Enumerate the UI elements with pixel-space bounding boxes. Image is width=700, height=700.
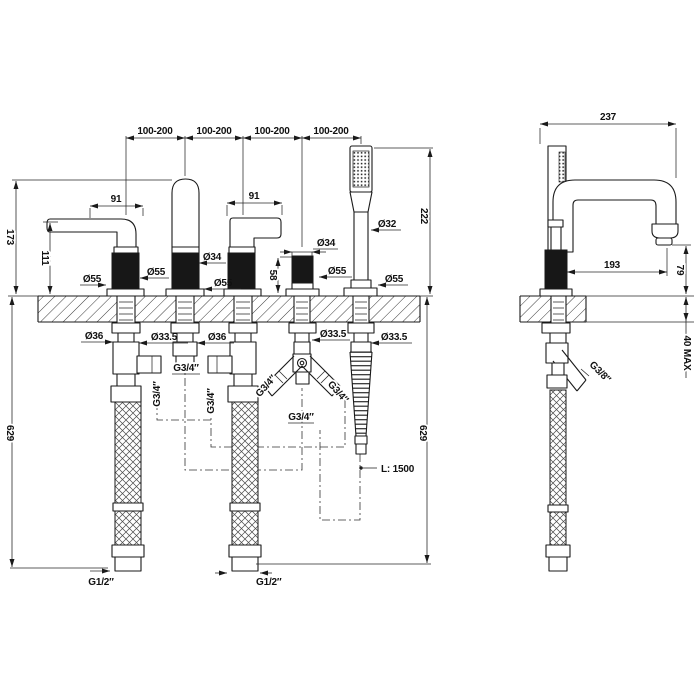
label-dia335-handle-left: Ø33.5 (151, 332, 178, 343)
diverter-bottom-port (296, 372, 309, 384)
label-diverter-height: 58 (267, 270, 278, 281)
label-handshower-height: 222 (418, 208, 429, 225)
side-view: 237 193 79 40 MAX G3/8″ (520, 112, 694, 571)
label-spacing-3: 100-200 (254, 126, 290, 137)
label-dia335-handshower: Ø33.5 (381, 332, 408, 343)
label-dia36-handle-left: Ø36 (85, 331, 104, 342)
label-lever-length-left: 91 (111, 194, 122, 205)
label-g38-port: G3/8″ (587, 359, 613, 385)
label-g34-spout-port: G3/4″ (173, 363, 199, 374)
diverter-shank (294, 296, 310, 323)
label-spacing-2: 100-200 (196, 126, 232, 137)
hose-left-end-fitting (115, 557, 141, 571)
handle-right-shank (234, 296, 252, 323)
label-dia335-diverter: Ø33.5 (320, 329, 347, 340)
handshower-escutcheon (344, 288, 377, 296)
label-g34-diverter-bottom: G3/4″ (288, 412, 314, 423)
label-dia32-handshower: Ø32 (378, 219, 397, 230)
label-spout-height: 173 (4, 229, 15, 246)
spout-outlet (652, 224, 678, 238)
handle-left-escutcheon (107, 289, 144, 296)
label-side-width: 237 (600, 112, 617, 123)
diverter-tee-body (293, 354, 311, 372)
label-outlet-height: 79 (674, 265, 685, 276)
spout-shank (176, 296, 194, 323)
label-dia55-spout: Ø55 (214, 278, 233, 289)
handshower-hose-fitting (356, 444, 366, 454)
label-spacing-1: 100-200 (137, 126, 173, 137)
handle-right-side-port (208, 356, 232, 373)
label-g12-hose-left: G1/2″ (88, 577, 114, 588)
label-dia55-handle-left-2: Ø55 (147, 267, 166, 278)
spout-escutcheon (166, 289, 204, 296)
technical-drawing-page: 100-200 100-200 100-200 100-200 91 91 17… (0, 0, 700, 700)
handshower-spray-face (353, 151, 369, 187)
handle-left-hex-nut (111, 386, 141, 402)
label-dia55-handle-left: Ø55 (83, 274, 102, 285)
handle-left-neck (114, 247, 138, 253)
handle-right-valve-body (230, 342, 256, 374)
routing-handshower-hose (320, 430, 360, 520)
hose-side-end-fitting (549, 557, 567, 571)
valve-body-side (545, 250, 567, 289)
handle-left-shank (117, 296, 135, 323)
label-dia55-handshower: Ø55 (385, 274, 404, 285)
label-g12-hose-right: G1/2″ (256, 577, 282, 588)
handshower-shank (353, 296, 369, 323)
label-hose-length: L: 1500 (381, 464, 415, 475)
supply-hose-side (546, 390, 570, 571)
label-dia55-diverter: Ø55 (328, 266, 347, 277)
handle-right-neck (229, 247, 255, 253)
handshower-hose-spring (350, 352, 372, 436)
handle-left-valve-body (113, 342, 139, 374)
handle-left (47, 219, 161, 571)
diverter-escutcheon (286, 289, 319, 296)
label-g34-handle-left-port: G3/4″ (152, 381, 163, 407)
valve-escutcheon-side (540, 289, 572, 296)
label-under-depth-right: 629 (417, 425, 428, 442)
label-dia34-spout: Ø34 (203, 252, 222, 263)
handshower-handle (354, 212, 368, 280)
label-handle-height: 111 (39, 251, 50, 267)
valve-side (540, 220, 589, 571)
valve-shank-side (551, 296, 566, 323)
label-under-depth-left: 629 (4, 425, 15, 442)
label-deck-max: 40 MAX (681, 336, 692, 371)
diverter-knob (292, 256, 313, 283)
handle-left-grip (112, 253, 139, 289)
label-spacing-4: 100-200 (313, 126, 349, 137)
hose-right-end-fitting (232, 557, 258, 571)
label-spout-reach: 193 (604, 260, 621, 271)
supply-hose-left (112, 402, 144, 571)
spout-side (553, 180, 678, 252)
handle-left-side-port (137, 356, 161, 373)
supply-hose-right (229, 402, 261, 571)
handshower-side-spray-face (559, 152, 565, 182)
label-g34-handle-right-port: G3/4″ (206, 388, 217, 414)
front-view: 100-200 100-200 100-200 100-200 91 91 17… (4, 126, 433, 588)
spout-aerator (656, 238, 672, 245)
deck-side (520, 296, 694, 322)
label-dia34-diverter: Ø34 (317, 238, 336, 249)
faucet-dimension-drawing: 100-200 100-200 100-200 100-200 91 91 17… (0, 0, 700, 700)
handle-right-escutcheon (224, 289, 261, 296)
label-lever-length-right: 91 (249, 191, 260, 202)
spout-band (172, 253, 199, 289)
label-dia36-spout: Ø36 (208, 332, 227, 343)
handle-right-hex-nut (228, 386, 258, 402)
